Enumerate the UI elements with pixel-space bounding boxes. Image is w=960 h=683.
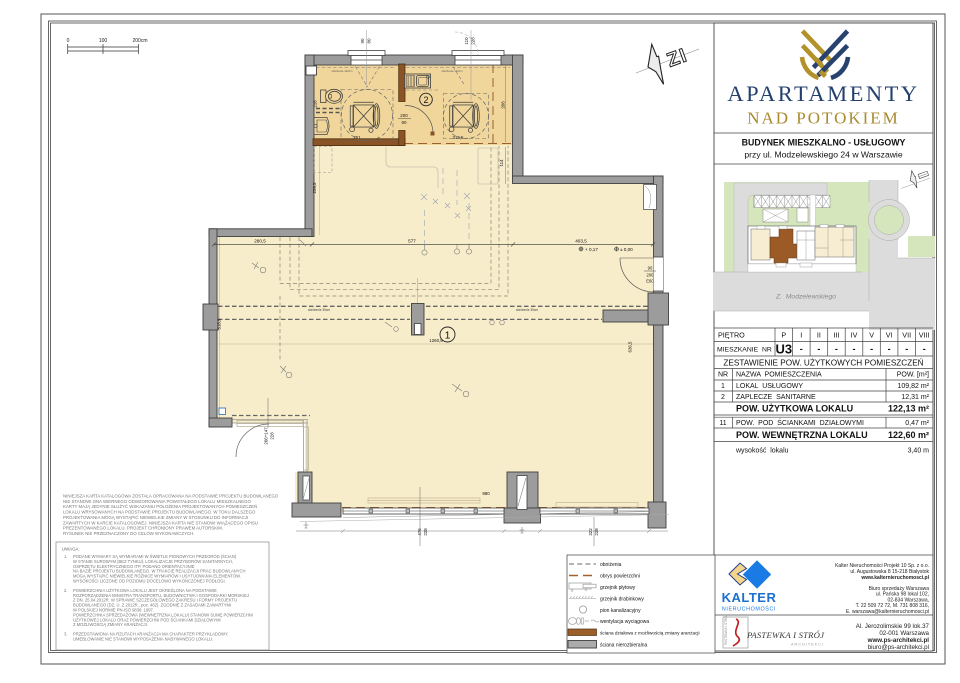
svg-text:122,60 m²: 122,60 m² — [888, 430, 929, 440]
svg-text:NAD POTOKIEM: NAD POTOKIEM — [747, 109, 900, 128]
svg-text:obniżenie 35cm: obniżenie 35cm — [516, 308, 539, 312]
svg-text:02-001 Warszawa: 02-001 Warszawa — [879, 630, 929, 637]
svg-text:NINIEJSZA KARTA KATALOGOWA ZOS: NINIEJSZA KARTA KATALOGOWA ZOSTAŁA OPRAC… — [63, 494, 279, 499]
svg-text:grzejnik płytowy: grzejnik płytowy — [600, 585, 636, 591]
svg-text:109,82 m²: 109,82 m² — [897, 383, 929, 390]
svg-text:ściana działowa z możliwością: ściana działowa z możliwością zmiany ara… — [600, 631, 700, 636]
svg-text:2: 2 — [423, 95, 428, 105]
svg-text:228: 228 — [423, 528, 428, 536]
svg-text:577: 577 — [408, 239, 416, 244]
svg-text:-: - — [888, 344, 891, 354]
svg-text:VI: VI — [886, 331, 893, 340]
svg-text:636,5: 636,5 — [628, 341, 633, 353]
svg-text:-: - — [905, 344, 908, 354]
svg-text:E. warszawa@kalternieruchomosc: E. warszawa@kalternieruchomosci.pl — [846, 609, 929, 615]
svg-text:ZESTAWIENIE POW. UŻYTKOWYCH PO: ZESTAWIENIE POW. UŻYTKOWYCH POMIESZCZEŃ — [723, 358, 923, 368]
svg-text:pion kanalizacyjny: pion kanalizacyjny — [600, 608, 641, 614]
svg-text:122,13 m²: 122,13 m² — [888, 404, 929, 414]
svg-text:NIE STANOWI ONA WIERNEGO ODWZO: NIE STANOWI ONA WIERNEGO ODWZOROWANIA PO… — [63, 499, 252, 504]
svg-text:WYSOKOŚCI LICZONE OD POZIOMU D: WYSOKOŚCI LICZONE OD POZIOMU DOCELOWO WY… — [73, 579, 226, 584]
svg-text:www.kalternieruchomosci.pl: www.kalternieruchomosci.pl — [860, 575, 929, 581]
svg-text:100: 100 — [99, 38, 108, 44]
svg-text:III: III — [833, 331, 839, 340]
svg-text:grzejnik drabinkowy: grzejnik drabinkowy — [600, 597, 644, 603]
svg-text:www.ps-architekci.pl: www.ps-architekci.pl — [867, 637, 930, 644]
svg-text:Al. Jerozolimskie 99 lok.37: Al. Jerozolimskie 99 lok.37 — [856, 623, 930, 630]
svg-text:obniżenie 112cm: obniżenie 112cm — [332, 69, 354, 73]
svg-text:NR: NR — [718, 371, 728, 378]
svg-text:90: 90 — [648, 266, 653, 271]
svg-text:Z. Modzelewskiego: Z. Modzelewskiego — [775, 294, 836, 301]
svg-text:12,31 m²: 12,31 m² — [901, 394, 929, 401]
svg-text:LOKALU WRYSOWANYCH NA PODSTAWI: LOKALU WRYSOWANYCH NA PODSTAWIE PROJEKTU… — [63, 510, 256, 515]
svg-text:0: 0 — [67, 38, 70, 44]
svg-text:PIĘTRO: PIĘTRO — [718, 331, 745, 340]
svg-text:200cm: 200cm — [132, 38, 147, 44]
svg-text:obniżenie 35cm: obniżenie 35cm — [308, 308, 331, 312]
svg-text:P: P — [781, 331, 786, 340]
svg-text:± 0,00: ± 0,00 — [620, 247, 633, 252]
svg-text:Z MOŻLIWOŚCIĄ ZMIANY ARANŻACJI: Z MOŻLIWOŚCIĄ ZMIANY ARANŻACJI. — [73, 622, 148, 627]
svg-text:518,5: 518,5 — [217, 318, 222, 330]
svg-text:259,5: 259,5 — [312, 182, 317, 194]
svg-text:NAZWA POMIESZCZENIA: NAZWA POMIESZCZENIA — [736, 371, 822, 378]
svg-text:APARTAMENTY: APARTAMENTY — [727, 81, 919, 106]
svg-text:228: 228 — [594, 528, 599, 536]
svg-text:NIERUCHOMOŚCI: NIERUCHOMOŚCI — [722, 605, 776, 613]
svg-text:obniżenie 112cm: obniżenie 112cm — [442, 69, 464, 73]
svg-text:-: - — [870, 344, 873, 354]
svg-text:-: - — [800, 344, 803, 354]
svg-text:114: 114 — [499, 159, 504, 167]
svg-text:206+147: 206+147 — [264, 427, 269, 445]
svg-text:PREZENTOWANEGO LOKALU. PROJEKT: PREZENTOWANEGO LOKALU. PROJEKT CHRONIONY… — [63, 526, 223, 531]
svg-text:ZAWARTYCH W KARCIE KATALOGOWEJ: ZAWARTYCH W KARCIE KATALOGOWEJ. NINIEJSZ… — [63, 520, 258, 525]
svg-text:biuro@ps-architekci.pl: biuro@ps-architekci.pl — [868, 644, 929, 651]
svg-text:PASTEWKA I STRÓJ: PASTEWKA I STRÓJ — [746, 630, 825, 640]
svg-text:I: I — [800, 331, 802, 340]
svg-text:200: 200 — [647, 273, 655, 278]
svg-text:U3: U3 — [775, 342, 792, 357]
svg-text:3.: 3. — [64, 632, 67, 637]
svg-text:280,5: 280,5 — [254, 239, 266, 244]
svg-text:POW. WEWNĘTRZNA LOKALU: POW. WEWNĘTRZNA LOKALU — [736, 430, 868, 440]
svg-text:wentylacja wyciągowa: wentylacja wyciągowa — [600, 619, 649, 625]
svg-text:-: - — [923, 344, 926, 354]
svg-text:228: 228 — [471, 37, 476, 45]
svg-text:206: 206 — [501, 101, 506, 109]
svg-text:RYSUNEK NIE PRZEZNACZONY DO CE: RYSUNEK NIE PRZEZNACZONY DO CELÓW WYKONA… — [63, 531, 194, 536]
svg-text:obniżenia: obniżenia — [600, 562, 622, 568]
svg-text:MIESZKANIE NR: MIESZKANIE NR — [717, 347, 772, 354]
svg-text:POW. UŻYTKOWA LOKALU: POW. UŻYTKOWA LOKALU — [736, 404, 853, 414]
svg-text:-: - — [835, 344, 838, 354]
svg-text:E60: E60 — [646, 279, 654, 284]
svg-text:obrys powierzchni: obrys powierzchni — [600, 574, 640, 580]
svg-text:11: 11 — [719, 420, 726, 427]
svg-text:216: 216 — [313, 100, 318, 108]
svg-text:UMEBLOWANIE NIE STANOWI WYPOSA: UMEBLOWANIE NIE STANOWI WYPOSAŻENIA NABY… — [73, 637, 213, 642]
svg-text:322: 322 — [588, 528, 593, 536]
svg-text:PASTEWKA I STRÓJ: PASTEWKA I STRÓJ — [723, 614, 728, 645]
svg-text:PROJEKTOWANIA MOGĄ WYSTĄPIĆ NI: PROJEKTOWANIA MOGĄ WYSTĄPIĆ NIEWIELKIE Z… — [63, 515, 248, 520]
svg-text:BUDYNEK MIESZKALNO - USŁUGOWY: BUDYNEK MIESZKALNO - USŁUGOWY — [742, 138, 906, 148]
svg-text:ściana nierozbieralna: ściana nierozbieralna — [600, 642, 647, 648]
svg-text:V: V — [869, 331, 874, 340]
svg-text:476: 476 — [417, 528, 422, 536]
svg-text:90: 90 — [401, 120, 407, 125]
svg-text:1.: 1. — [64, 554, 67, 559]
svg-text:POW. POD ŚCIANKAMI DZIAŁOWY: POW. POD ŚCIANKAMI DZIAŁOWYMI — [736, 418, 864, 427]
svg-text:VIII: VIII — [919, 331, 930, 340]
svg-text:UWAGA:: UWAGA: — [62, 547, 80, 552]
svg-text:IV: IV — [851, 331, 858, 340]
svg-text:1: 1 — [721, 383, 725, 390]
svg-text:90: 90 — [360, 38, 365, 44]
svg-text:KALTER: KALTER — [722, 590, 777, 605]
svg-text:228: 228 — [270, 432, 275, 440]
svg-text:POW. [m²]: POW. [m²] — [897, 371, 929, 378]
svg-text:2.: 2. — [64, 588, 67, 593]
svg-text:3,40 m: 3,40 m — [908, 447, 930, 454]
svg-text:2: 2 — [721, 394, 725, 401]
svg-text:403,5: 403,5 — [575, 239, 587, 244]
svg-text:-: - — [817, 344, 820, 354]
svg-text:200: 200 — [400, 113, 408, 118]
svg-text:wysokość lokalu: wysokość lokalu — [735, 447, 789, 454]
svg-text:-: - — [853, 344, 856, 354]
svg-text:LOKAL USŁUGOWY: LOKAL USŁUGOWY — [736, 383, 803, 390]
svg-text:980: 980 — [482, 491, 490, 496]
svg-text:1: 1 — [445, 330, 451, 341]
svg-text:ARCHITEKCI: ARCHITEKCI — [791, 643, 824, 647]
svg-text:0,47 m²: 0,47 m² — [905, 420, 929, 427]
svg-text:ZAPLECZE SANITARNE: ZAPLECZE SANITARNE — [736, 394, 816, 401]
svg-text:przy ul. Modzelewskiego 24 w W: przy ul. Modzelewskiego 24 w Warszawie — [744, 150, 902, 160]
svg-text:110: 110 — [464, 37, 469, 45]
svg-text:VII: VII — [902, 331, 911, 340]
svg-text:80: 80 — [367, 38, 372, 44]
svg-text:+ 0,17: + 0,17 — [585, 247, 598, 252]
svg-text:KARTY MAJĄ JEDYNIE SŁUŻYĆ WSKA: KARTY MAJĄ JEDYNIE SŁUŻYĆ WSKAZANIU POŁO… — [63, 504, 257, 509]
svg-text:II: II — [817, 331, 821, 340]
